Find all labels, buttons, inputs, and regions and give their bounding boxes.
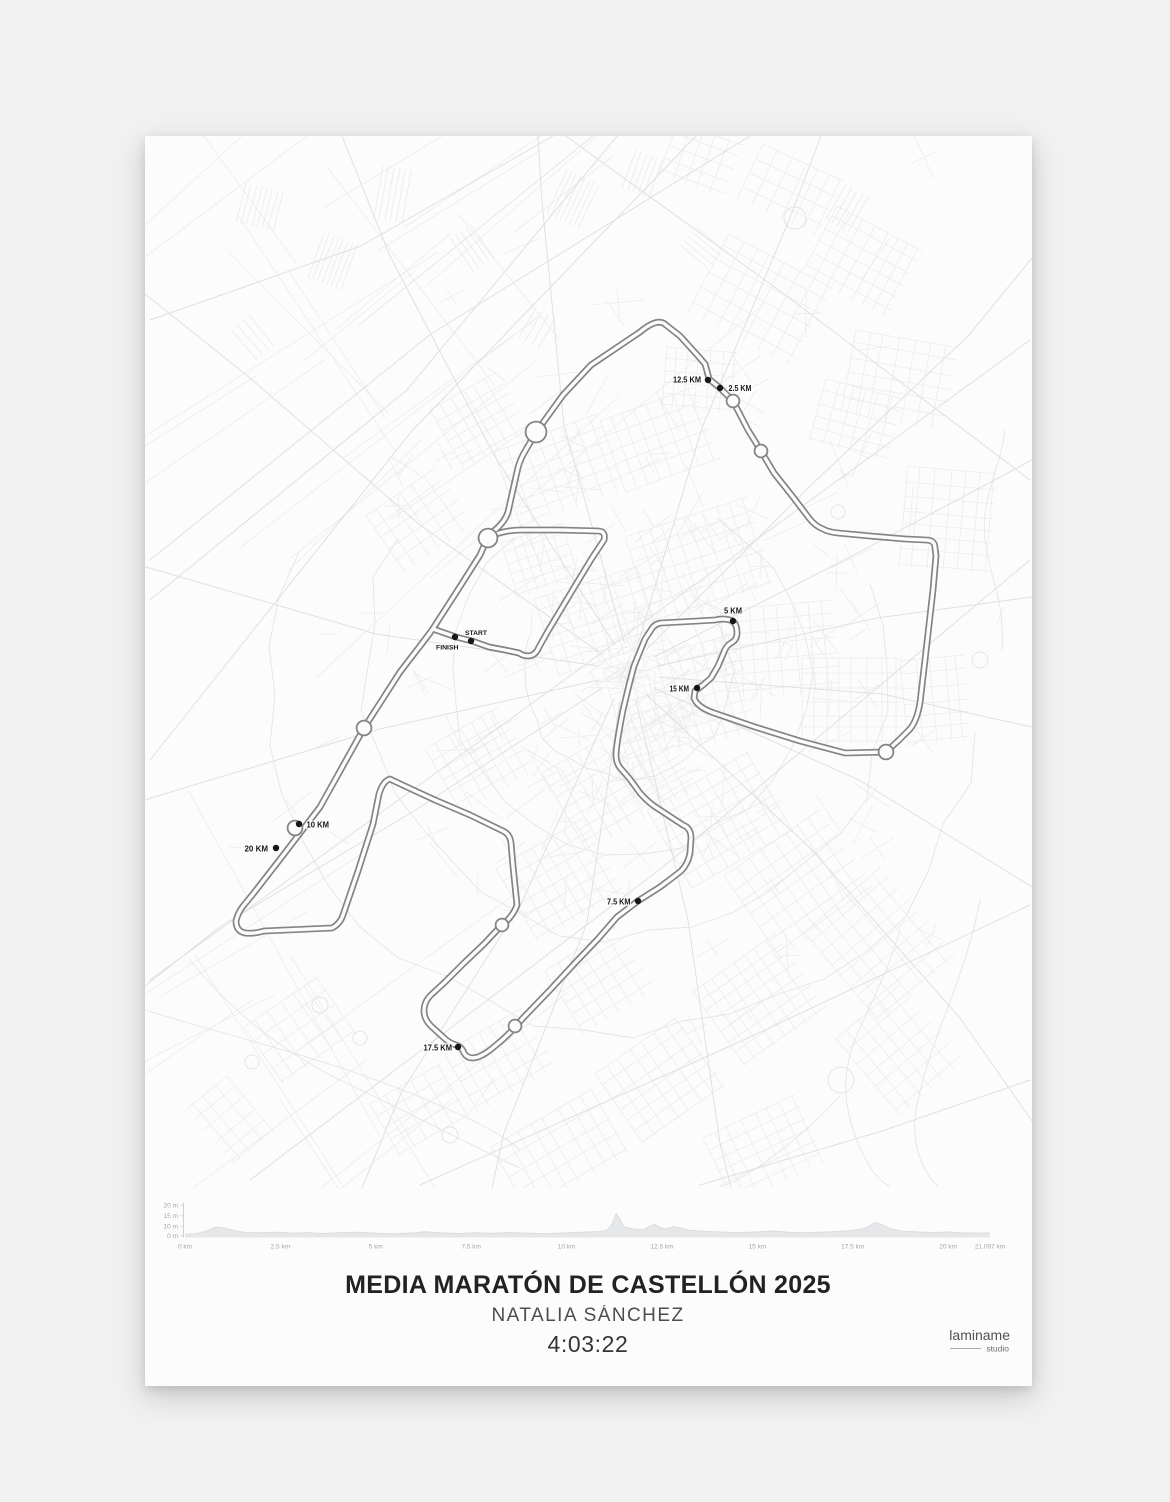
svg-text:2.5 KM: 2.5 KM [729, 383, 752, 393]
svg-text:0 m: 0 m [167, 1233, 178, 1240]
svg-text:10 m: 10 m [164, 1224, 178, 1231]
svg-text:5 KM: 5 KM [724, 606, 742, 616]
svg-text:studio: studio [986, 1344, 1009, 1354]
svg-text:10 KM: 10 KM [307, 820, 330, 830]
svg-text:10 km: 10 km [558, 1244, 576, 1251]
svg-text:20 km: 20 km [939, 1244, 957, 1251]
svg-text:5 km: 5 km [369, 1244, 383, 1251]
svg-text:17.5 km: 17.5 km [841, 1244, 864, 1251]
svg-text:15 m: 15 m [164, 1213, 178, 1220]
svg-text:laminame: laminame [949, 1327, 1010, 1343]
svg-text:4:03:22: 4:03:22 [548, 1331, 629, 1357]
svg-text:12.5 km: 12.5 km [650, 1244, 673, 1251]
svg-text:21.097 km: 21.097 km [975, 1244, 1005, 1251]
svg-text:MEDIA MARATÓN DE CASTELLÓN 202: MEDIA MARATÓN DE CASTELLÓN 2025 [345, 1269, 831, 1299]
svg-text:NATALIA SÁNCHEZ: NATALIA SÁNCHEZ [492, 1305, 685, 1326]
svg-text:7.5 km: 7.5 km [461, 1244, 481, 1251]
svg-text:0 km: 0 km [178, 1244, 192, 1251]
svg-text:START: START [465, 630, 488, 637]
svg-text:FINISH: FINISH [436, 644, 459, 651]
svg-text:20 KM: 20 KM [245, 844, 269, 854]
svg-text:7.5 KM: 7.5 KM [607, 897, 631, 907]
svg-text:15 KM: 15 KM [670, 684, 690, 694]
svg-text:17.5 KM: 17.5 KM [424, 1043, 453, 1053]
svg-text:2.5 km: 2.5 km [271, 1244, 291, 1251]
svg-text:20 m: 20 m [164, 1203, 178, 1210]
svg-text:15 km: 15 km [749, 1244, 767, 1251]
svg-text:12.5 KM: 12.5 KM [673, 375, 701, 385]
